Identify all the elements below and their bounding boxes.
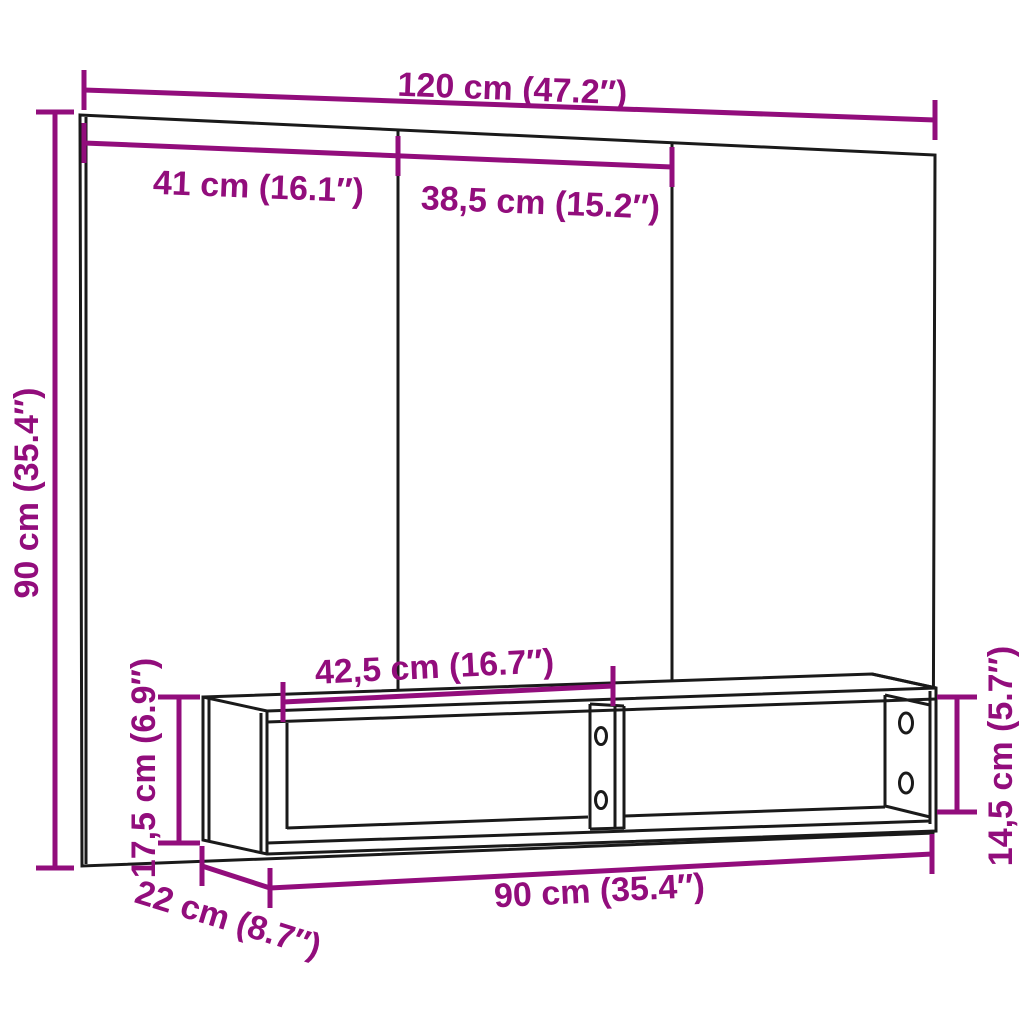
dimension-shelf-inner-height: 14,5 cm (5.7″): [937, 646, 1020, 866]
divider-top-edge: [590, 704, 624, 706]
dimension-line: [202, 866, 270, 888]
right-end-screw-hole-top: [900, 713, 913, 733]
dimension-diagram: 120 cm (47.2″) 41 cm (16.1″) 38,5 cm (15…: [0, 0, 1024, 1024]
dimension-label: 90 cm (35.4″): [8, 388, 46, 599]
divider-screw-hole-bottom: [596, 792, 607, 809]
dimension-label: 120 cm (47.2″): [397, 66, 628, 113]
diagram-canvas: 120 cm (47.2″) 41 cm (16.1″) 38,5 cm (15…: [0, 0, 1024, 1024]
dimension-label: 14,5 cm (5.7″): [982, 646, 1020, 866]
divider-bottom-edge: [590, 828, 624, 829]
dimension-label: 17,5 cm (6.9″): [125, 658, 163, 878]
dimension-panel-height: 90 cm (35.4″): [8, 112, 74, 868]
divider-screw-hole-top: [596, 728, 607, 745]
right-end-screw-hole-bottom: [900, 773, 913, 793]
